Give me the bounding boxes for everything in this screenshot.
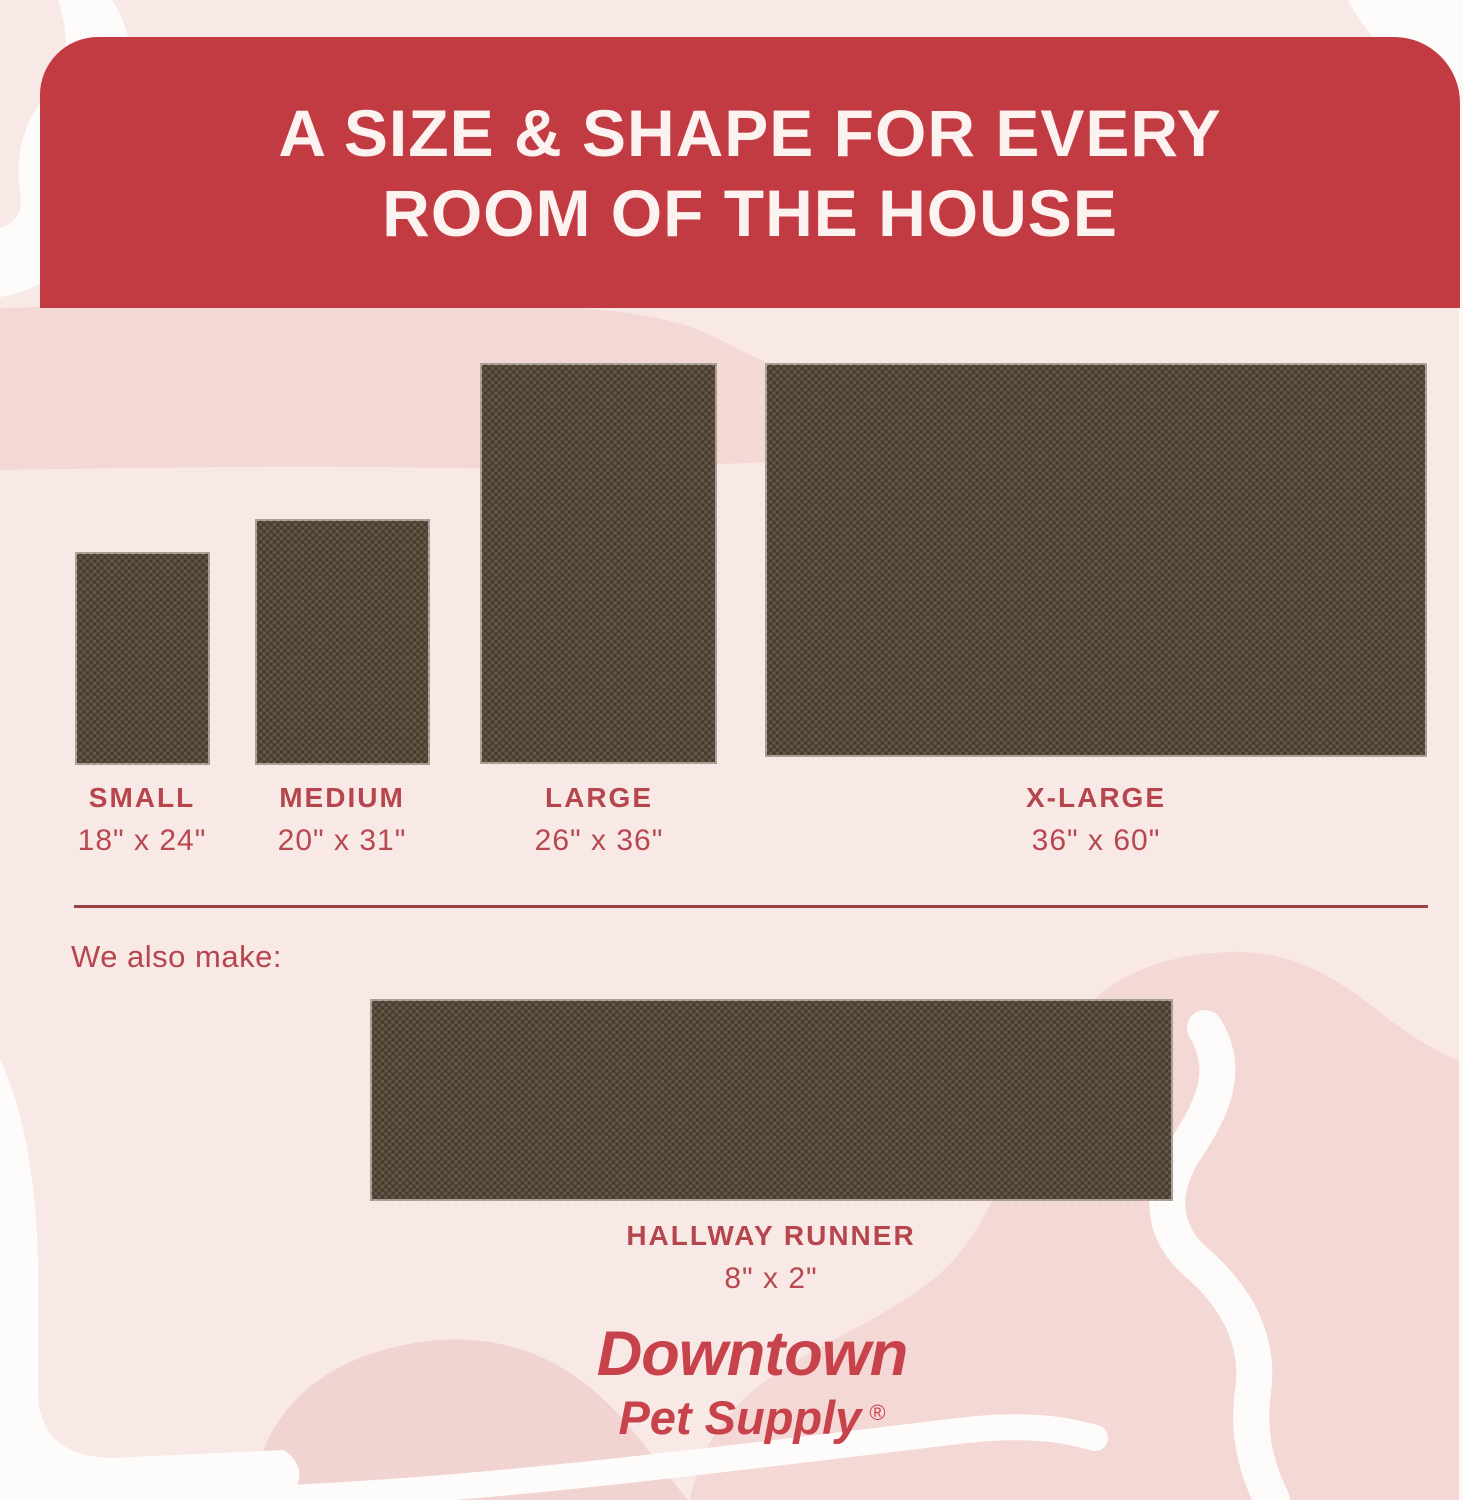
mat-hallway-runner (370, 999, 1173, 1201)
size-dimensions: 8" x 2" (626, 1261, 915, 1297)
section-divider (74, 905, 1428, 908)
size-dimensions: 26" x 36" (535, 823, 664, 859)
size-label-hallway-runner: HALLWAY RUNNER 8" x 2" (626, 1219, 915, 1297)
header-title-line2: ROOM OF THE HOUSE (382, 173, 1118, 253)
size-name: HALLWAY RUNNER (626, 1219, 915, 1253)
brand-name-line2-text: Pet Supply (618, 1391, 861, 1444)
size-label-large: LARGE 26" x 36" (535, 781, 664, 859)
header-banner: A SIZE & SHAPE FOR EVERY ROOM OF THE HOU… (40, 37, 1460, 308)
brand-name-line1: Downtown (597, 1322, 907, 1386)
size-label-medium: MEDIUM 20" x 31" (278, 781, 407, 859)
brand-logo: Downtown Pet Supply® (597, 1322, 907, 1443)
header-title-line1: A SIZE & SHAPE FOR EVERY (278, 93, 1221, 173)
size-label-x-large: X-LARGE 36" x 60" (1026, 781, 1166, 859)
size-dimensions: 36" x 60" (1026, 823, 1166, 859)
infographic-canvas: A SIZE & SHAPE FOR EVERY ROOM OF THE HOU… (0, 0, 1463, 1500)
brand-name-line2: Pet Supply® (597, 1388, 907, 1443)
size-label-small: SMALL 18" x 24" (78, 781, 207, 859)
size-dimensions: 18" x 24" (78, 823, 207, 859)
mat-medium (255, 519, 430, 765)
mat-x-large (765, 363, 1427, 757)
bottom-left-white (0, 1060, 300, 1500)
mat-large (480, 363, 717, 764)
size-name: LARGE (535, 781, 664, 815)
also-make-intro: We also make: (71, 940, 282, 974)
mat-small (75, 552, 210, 765)
size-name: MEDIUM (278, 781, 407, 815)
registered-trademark-mark: ® (869, 1400, 885, 1425)
size-name: SMALL (78, 781, 207, 815)
size-dimensions: 20" x 31" (278, 823, 407, 859)
size-name: X-LARGE (1026, 781, 1166, 815)
